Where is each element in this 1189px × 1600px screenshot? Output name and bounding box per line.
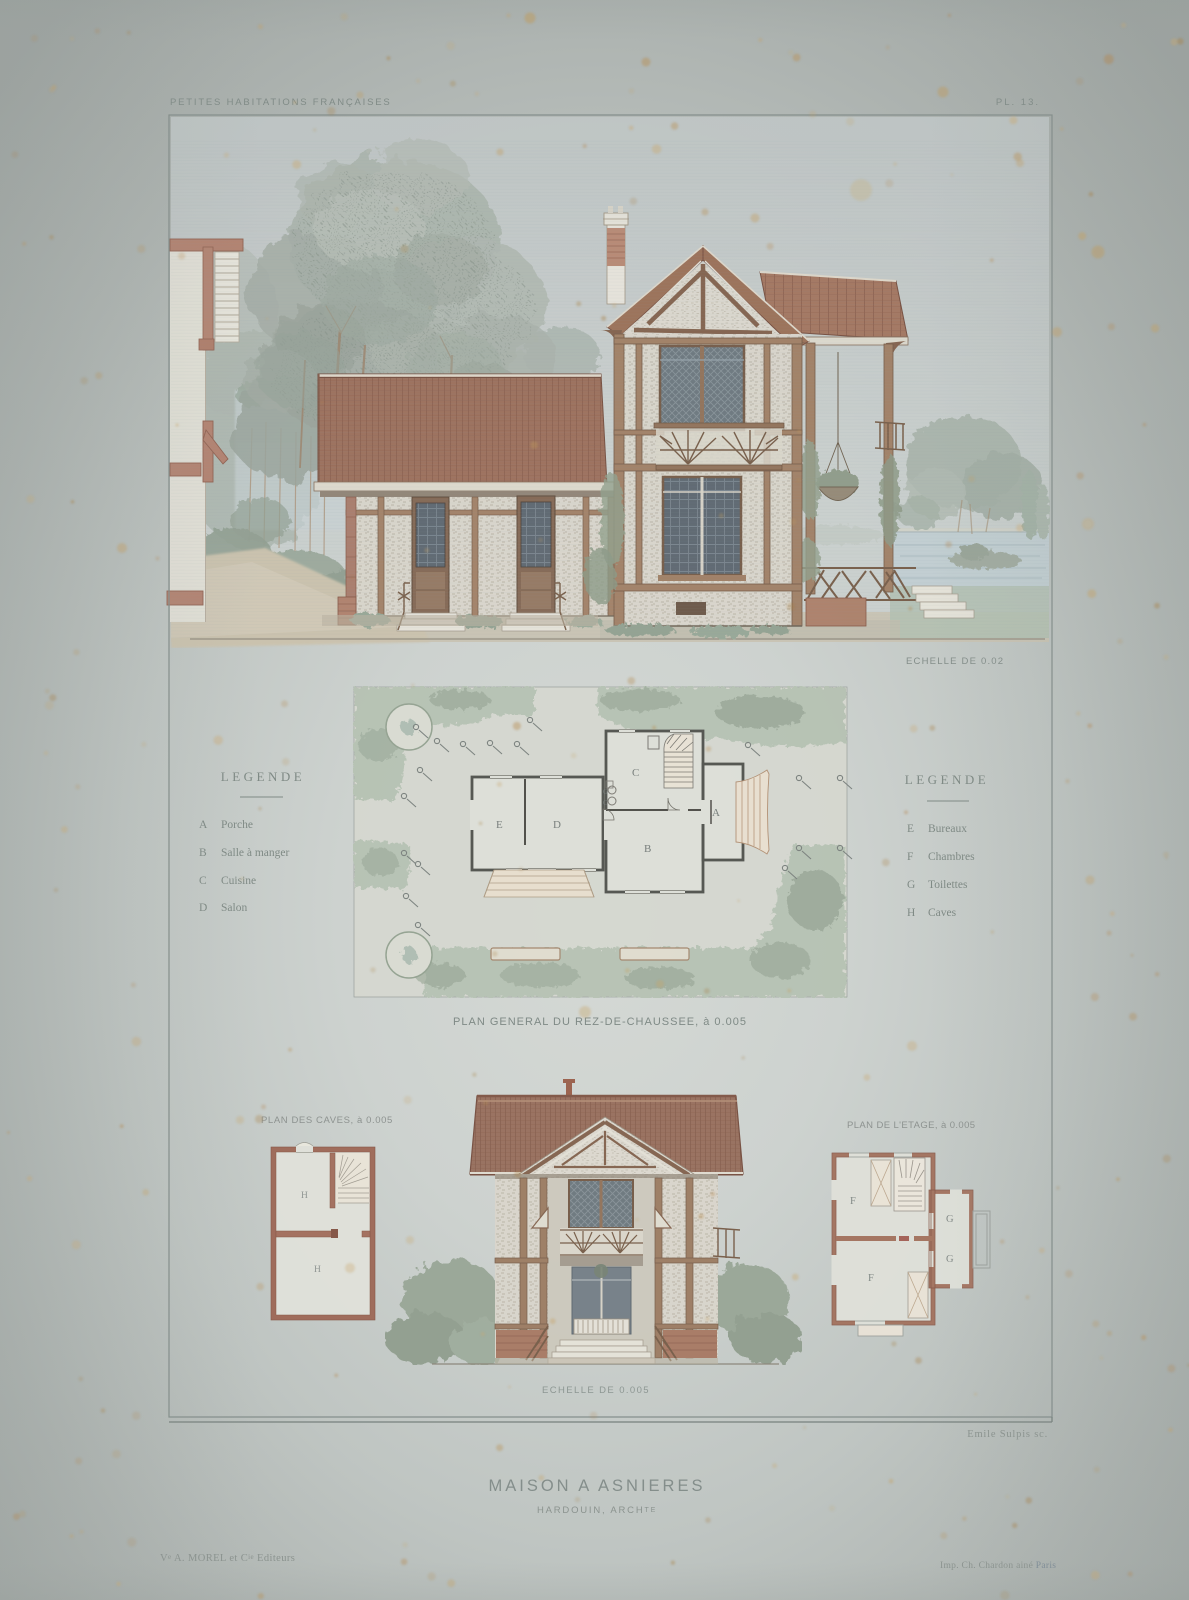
svg-text:G: G: [907, 879, 915, 891]
svg-text:C: C: [632, 767, 639, 779]
svg-text:B: B: [644, 843, 651, 855]
svg-text:D: D: [553, 819, 561, 831]
svg-text:E: E: [907, 823, 914, 835]
svg-text:C: C: [603, 799, 608, 807]
svg-text:E: E: [496, 819, 503, 831]
svg-text:PLAN GENERAL DU REZ-DE-CHAUSSE: PLAN GENERAL DU REZ-DE-CHAUSSEE, à 0.005: [453, 1016, 747, 1028]
svg-text:MAISON A ASNIERES: MAISON A ASNIERES: [489, 1477, 706, 1495]
svg-text:F: F: [868, 1273, 874, 1284]
svg-text:H: H: [301, 1191, 308, 1201]
svg-text:ECHELLE DE 0.005: ECHELLE DE 0.005: [542, 1385, 650, 1396]
svg-text:G: G: [603, 788, 608, 796]
svg-text:PLAN DES CAVES, à 0.005: PLAN DES CAVES, à 0.005: [261, 1115, 393, 1126]
svg-text:H: H: [907, 907, 915, 919]
svg-text:H: H: [314, 1265, 321, 1275]
svg-text:A: A: [712, 807, 720, 819]
svg-text:F: F: [907, 851, 913, 863]
svg-text:F: F: [850, 1196, 856, 1207]
svg-text:HARDOUIN, ARCHTE: HARDOUIN, ARCHTE: [537, 1505, 657, 1516]
